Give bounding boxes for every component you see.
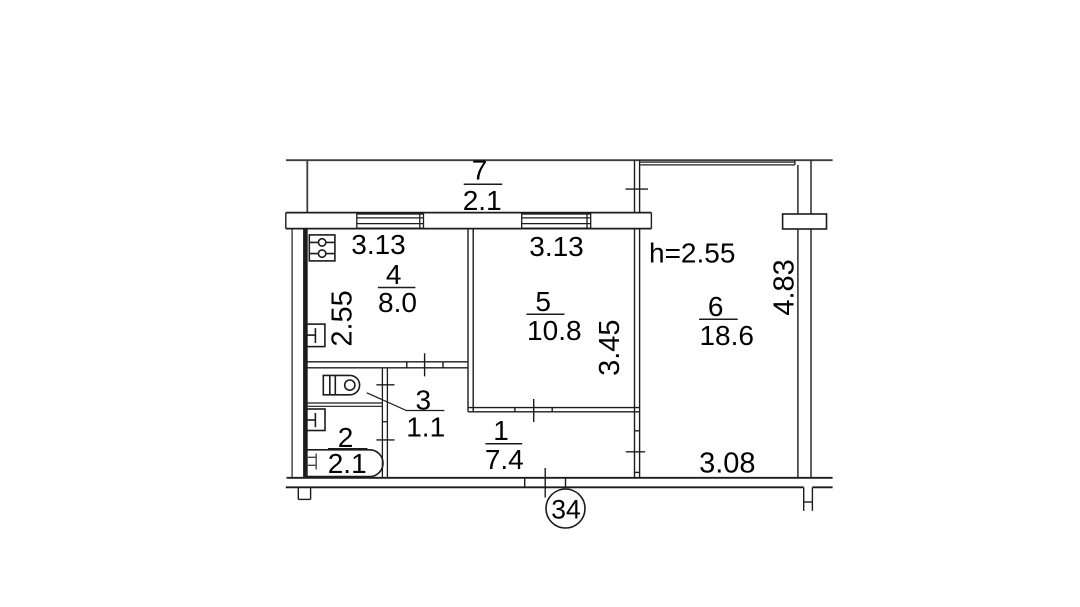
svg-text:7.4: 7.4 bbox=[485, 444, 524, 475]
svg-text:h=2.55: h=2.55 bbox=[649, 237, 735, 268]
svg-text:5: 5 bbox=[535, 286, 551, 317]
svg-text:6: 6 bbox=[708, 291, 724, 322]
svg-text:7: 7 bbox=[472, 155, 488, 186]
svg-text:3.13: 3.13 bbox=[529, 231, 584, 262]
svg-text:2.55: 2.55 bbox=[327, 290, 359, 346]
svg-text:34: 34 bbox=[551, 494, 580, 524]
svg-text:1.1: 1.1 bbox=[406, 412, 445, 443]
svg-text:10.8: 10.8 bbox=[527, 315, 582, 346]
svg-text:8.0: 8.0 bbox=[378, 287, 417, 318]
svg-text:2.1: 2.1 bbox=[328, 448, 367, 479]
svg-text:1: 1 bbox=[493, 415, 509, 446]
svg-text:3.45: 3.45 bbox=[594, 319, 626, 375]
svg-text:3.08: 3.08 bbox=[699, 448, 755, 480]
svg-text:2.1: 2.1 bbox=[463, 185, 502, 216]
svg-text:4: 4 bbox=[386, 259, 402, 290]
svg-text:18.6: 18.6 bbox=[699, 320, 754, 351]
svg-text:4.83: 4.83 bbox=[769, 259, 801, 315]
svg-text:3.13: 3.13 bbox=[351, 229, 406, 260]
